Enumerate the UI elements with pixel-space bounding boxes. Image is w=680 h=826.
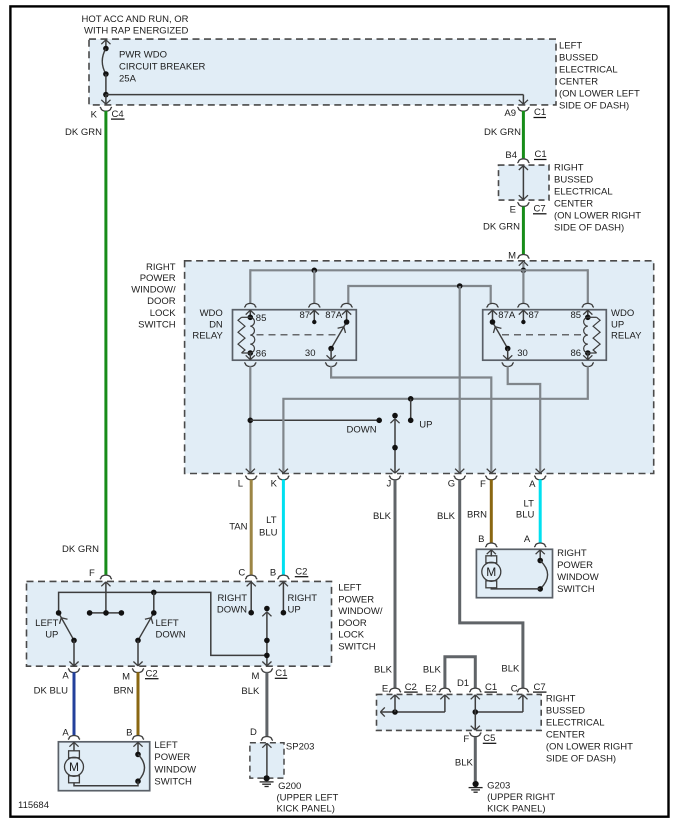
svg-text:BUSSED: BUSSED [559,53,598,64]
svg-text:WINDOW/: WINDOW/ [338,606,383,617]
svg-text:CENTER: CENTER [554,199,593,210]
svg-text:C4: C4 [112,109,124,120]
svg-text:SWITCH: SWITCH [138,320,176,331]
svg-text:LEFT: LEFT [154,740,177,751]
svg-text:ELECTRICAL: ELECTRICAL [546,718,605,729]
svg-text:BLK: BLK [374,665,393,676]
svg-text:RELAY: RELAY [611,331,642,342]
svg-text:POWER: POWER [140,273,176,284]
svg-text:DK GRN: DK GRN [483,222,520,233]
svg-text:A: A [62,671,69,682]
svg-text:87A: 87A [325,310,343,321]
svg-text:RIGHT: RIGHT [546,694,576,705]
svg-text:85: 85 [256,313,267,324]
svg-text:RIGHT: RIGHT [554,163,584,174]
svg-text:K: K [271,479,278,490]
svg-text:G200: G200 [278,781,301,792]
svg-text:B4: B4 [505,150,517,161]
svg-text:B: B [478,534,484,545]
svg-text:POWER: POWER [338,594,374,605]
svg-text:RIGHT: RIGHT [557,548,587,559]
svg-text:LT: LT [524,498,535,509]
svg-text:BUSSED: BUSSED [554,175,593,186]
svg-text:E: E [382,684,388,695]
svg-text:E: E [510,205,516,216]
svg-text:WDO: WDO [200,308,223,319]
svg-text:WINDOW/: WINDOW/ [131,285,176,296]
svg-text:(ON LOWER LEFT: (ON LOWER LEFT [559,89,640,100]
svg-text:K: K [91,110,98,121]
svg-text:A: A [524,534,531,545]
svg-text:UP: UP [45,630,58,641]
svg-text:RELAY: RELAY [192,331,223,342]
svg-text:POWER: POWER [557,560,593,571]
svg-text:BUSSED: BUSSED [546,706,585,717]
svg-text:(ON LOWER RIGHT: (ON LOWER RIGHT [546,742,633,753]
svg-text:C1: C1 [485,682,497,693]
svg-text:HOT ACC AND RUN, OR: HOT ACC AND RUN, OR [82,14,189,25]
svg-text:C1: C1 [535,149,547,160]
svg-text:DK BLU: DK BLU [34,686,68,697]
svg-text:BLK: BLK [241,686,260,697]
svg-text:85: 85 [571,310,582,321]
svg-text:SIDE OF DASH): SIDE OF DASH) [559,101,629,112]
svg-text:C2: C2 [405,682,417,693]
svg-text:CIRCUIT BREAKER: CIRCUIT BREAKER [119,62,206,73]
svg-text:C1: C1 [275,668,287,679]
svg-text:LEFT: LEFT [559,41,582,52]
svg-text:E2: E2 [425,684,437,695]
svg-text:DOOR: DOOR [338,618,367,629]
svg-text:BLU: BLU [259,528,278,539]
svg-text:DOWN: DOWN [217,605,247,616]
svg-text:C5: C5 [483,733,495,744]
svg-text:F: F [480,479,486,490]
svg-text:(UPPER LEFT: (UPPER LEFT [277,793,339,804]
svg-text:(UPPER RIGHT: (UPPER RIGHT [487,792,555,803]
svg-text:F: F [89,568,95,579]
svg-text:BLK: BLK [373,511,392,522]
svg-text:86: 86 [571,348,582,359]
svg-text:D: D [250,727,257,738]
svg-text:SIDE OF DASH): SIDE OF DASH) [554,223,624,234]
svg-text:C: C [511,684,518,695]
svg-text:115684: 115684 [18,800,49,811]
svg-text:C2: C2 [295,566,307,577]
svg-text:SWITCH: SWITCH [557,584,595,595]
svg-text:RIGHT: RIGHT [146,262,176,273]
svg-text:A: A [62,728,69,739]
svg-text:87: 87 [529,310,540,321]
svg-text:BLU: BLU [516,510,535,521]
svg-text:ELECTRICAL: ELECTRICAL [559,65,618,76]
svg-text:SP203: SP203 [286,742,315,753]
svg-text:DK GRN: DK GRN [484,127,521,138]
svg-text:86: 86 [256,349,267,360]
svg-text:C2: C2 [146,668,158,679]
svg-text:RIGHT: RIGHT [217,593,247,604]
svg-text:25A: 25A [119,74,137,85]
svg-text:M: M [486,565,496,579]
svg-text:A9: A9 [504,108,516,119]
svg-text:DK GRN: DK GRN [62,544,99,555]
svg-text:J: J [387,479,392,490]
svg-text:LEFT: LEFT [156,618,179,629]
svg-text:BRN: BRN [467,510,487,521]
svg-text:30: 30 [517,348,528,359]
svg-text:KICK PANEL): KICK PANEL) [487,804,545,815]
svg-text:UP: UP [419,420,432,431]
svg-text:DN: DN [209,319,223,330]
svg-text:BLK: BLK [455,758,474,769]
svg-text:BLK: BLK [423,665,442,676]
svg-text:A: A [529,479,536,490]
svg-text:BRN: BRN [113,686,133,697]
svg-text:M: M [508,251,516,262]
svg-text:WINDOW: WINDOW [557,572,599,583]
svg-text:(ON LOWER RIGHT: (ON LOWER RIGHT [554,211,641,222]
svg-text:KICK PANEL): KICK PANEL) [277,804,335,815]
svg-text:UP: UP [611,319,624,330]
svg-text:C: C [238,568,245,579]
svg-text:M: M [69,760,79,774]
svg-text:SWITCH: SWITCH [154,777,192,788]
svg-text:WDO: WDO [611,308,634,319]
svg-text:L: L [238,479,243,490]
svg-text:SWITCH: SWITCH [338,642,376,653]
svg-text:F: F [463,734,469,745]
svg-text:LEFT: LEFT [35,618,58,629]
svg-text:LEFT: LEFT [338,582,361,593]
svg-text:C1: C1 [534,107,546,118]
svg-text:C7: C7 [534,682,546,693]
svg-text:CENTER: CENTER [559,77,598,88]
svg-text:ELECTRICAL: ELECTRICAL [554,187,613,198]
svg-text:WINDOW: WINDOW [154,764,196,775]
svg-text:BLK: BLK [501,664,520,675]
svg-text:UP: UP [288,605,301,616]
svg-text:TAN: TAN [229,522,247,533]
svg-text:G: G [448,479,455,490]
svg-text:D1: D1 [457,678,469,689]
svg-text:LOCK: LOCK [150,308,177,319]
svg-text:M: M [251,671,259,682]
svg-text:M: M [122,671,130,682]
svg-text:DK GRN: DK GRN [65,127,102,138]
svg-text:LT: LT [266,515,277,526]
svg-text:C7: C7 [534,204,546,215]
svg-text:B: B [126,728,132,739]
svg-text:SIDE OF DASH): SIDE OF DASH) [546,754,616,765]
svg-text:DOOR: DOOR [147,296,176,307]
svg-text:POWER: POWER [154,752,190,763]
svg-text:LOCK: LOCK [338,630,365,641]
svg-text:PWR WDO: PWR WDO [119,50,167,61]
svg-text:CENTER: CENTER [546,730,585,741]
svg-text:87A: 87A [498,310,516,321]
svg-text:30: 30 [305,348,316,359]
svg-text:B: B [270,568,276,579]
svg-text:DOWN: DOWN [156,630,186,641]
svg-text:87: 87 [300,310,311,321]
svg-text:RIGHT: RIGHT [288,593,318,604]
svg-text:DOWN: DOWN [347,425,377,436]
svg-text:WITH RAP ENERGIZED: WITH RAP ENERGIZED [84,25,188,36]
svg-text:G203: G203 [487,781,510,792]
svg-text:BLK: BLK [437,511,456,522]
